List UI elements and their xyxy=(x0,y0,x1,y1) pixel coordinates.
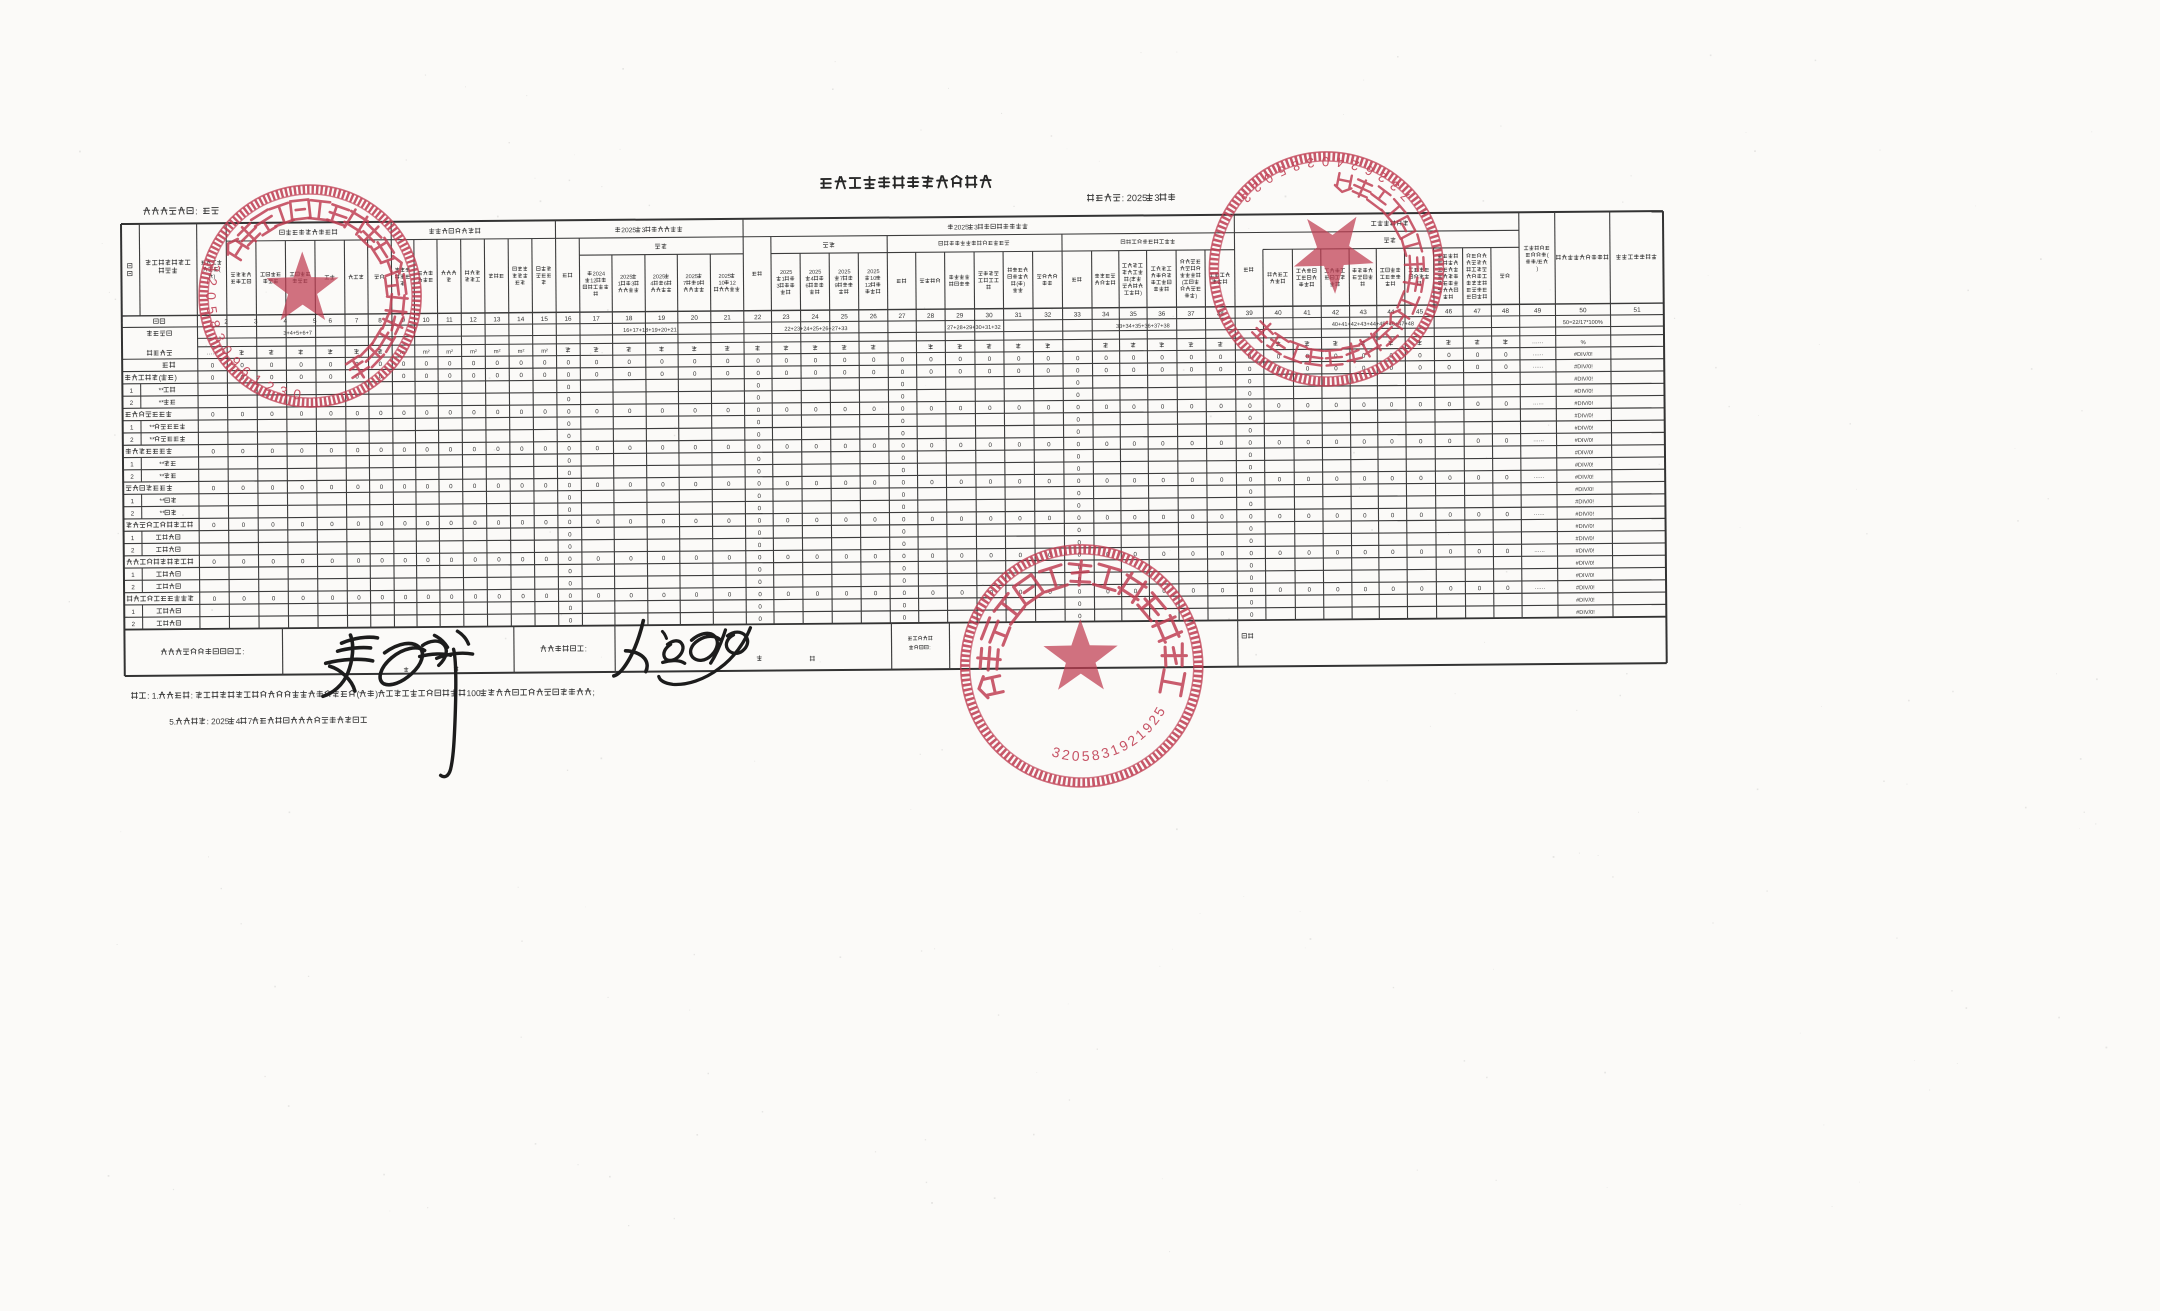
svg-text:0: 0 xyxy=(814,357,818,364)
svg-text:2025: 2025 xyxy=(838,269,851,275)
svg-text:40: 40 xyxy=(1275,310,1283,317)
svg-text:0: 0 xyxy=(521,520,525,527)
svg-text:0: 0 xyxy=(1018,515,1022,522)
svg-text:0: 0 xyxy=(242,596,246,603)
svg-text:0: 0 xyxy=(242,522,246,529)
svg-text:m²: m² xyxy=(423,350,430,356)
svg-text:0: 0 xyxy=(1418,352,1422,359)
svg-text:0: 0 xyxy=(1278,550,1282,557)
svg-text:0: 0 xyxy=(758,579,762,586)
svg-text:0: 0 xyxy=(902,492,906,499)
svg-text:0: 0 xyxy=(241,448,245,455)
svg-text:0: 0 xyxy=(728,555,732,562)
svg-text:0: 0 xyxy=(1279,587,1283,594)
svg-text:**: ** xyxy=(159,461,165,468)
svg-text:0: 0 xyxy=(693,358,697,365)
svg-text:0: 0 xyxy=(1335,402,1339,409)
svg-text:0: 0 xyxy=(270,411,274,418)
svg-text:0: 0 xyxy=(1133,477,1137,484)
svg-text:0: 0 xyxy=(568,495,572,502)
svg-text:0: 0 xyxy=(901,455,905,462)
svg-text:10: 10 xyxy=(870,276,876,282)
svg-text:0: 0 xyxy=(628,359,632,366)
svg-text:2024: 2024 xyxy=(593,271,606,277)
svg-text:0: 0 xyxy=(1322,154,1330,169)
svg-text:0: 0 xyxy=(757,395,761,402)
svg-text:0: 0 xyxy=(959,368,963,375)
svg-text:2025: 2025 xyxy=(780,270,793,276)
svg-text:0: 0 xyxy=(496,372,500,379)
svg-text:0: 0 xyxy=(301,521,305,528)
svg-text:34: 34 xyxy=(1102,311,1110,318)
svg-text:0: 0 xyxy=(203,292,219,300)
svg-text:2: 2 xyxy=(132,621,136,628)
svg-text:0: 0 xyxy=(1306,439,1310,446)
svg-text:4: 4 xyxy=(650,281,653,287)
svg-text:0: 0 xyxy=(568,470,572,477)
svg-text:0: 0 xyxy=(1133,514,1137,521)
svg-text:0: 0 xyxy=(568,507,572,514)
svg-text:0: 0 xyxy=(629,482,633,489)
svg-text:0: 0 xyxy=(1132,404,1136,411)
svg-text:0: 0 xyxy=(330,558,334,565)
svg-text:0: 0 xyxy=(1220,477,1224,484)
svg-text:0: 0 xyxy=(1448,401,1452,408)
svg-text:0: 0 xyxy=(844,480,848,487)
svg-text:16: 16 xyxy=(564,316,572,323)
svg-text:······: ······ xyxy=(1534,586,1545,592)
svg-text:0: 0 xyxy=(1506,548,1510,555)
svg-text:m²: m² xyxy=(518,349,525,355)
svg-text:7: 7 xyxy=(840,276,843,282)
svg-text:0: 0 xyxy=(1250,563,1254,570)
svg-text:0: 0 xyxy=(1249,477,1253,484)
svg-text:0: 0 xyxy=(1191,477,1195,484)
svg-text:0: 0 xyxy=(1504,364,1508,371)
svg-text:0: 0 xyxy=(241,411,245,418)
svg-text:12: 12 xyxy=(865,283,871,289)
svg-text:33+34+35+36+37+38: 33+34+35+36+37+38 xyxy=(1116,323,1170,329)
svg-text:0: 0 xyxy=(1390,439,1394,446)
svg-text:0: 0 xyxy=(543,409,547,416)
svg-text:5: 5 xyxy=(1081,748,1090,764)
svg-text:0: 0 xyxy=(1336,586,1340,593)
svg-text:0: 0 xyxy=(545,556,549,563)
svg-text:0: 0 xyxy=(356,410,360,417)
svg-text:0: 0 xyxy=(901,369,905,376)
svg-text:2: 2 xyxy=(131,510,135,517)
svg-text:0: 0 xyxy=(300,484,304,491)
svg-text:0: 0 xyxy=(1249,550,1253,557)
svg-text:0: 0 xyxy=(496,446,500,453)
svg-text:0: 0 xyxy=(901,418,905,425)
svg-text:0: 0 xyxy=(1161,367,1165,374)
svg-text:0: 0 xyxy=(1362,402,1366,409)
svg-text:0: 0 xyxy=(597,593,601,600)
svg-text:3: 3 xyxy=(631,281,634,287)
svg-text:0: 0 xyxy=(329,374,333,381)
svg-text:0: 0 xyxy=(872,406,876,413)
svg-text:0: 0 xyxy=(1221,550,1225,557)
svg-text:0: 0 xyxy=(1104,355,1108,362)
svg-text:0: 0 xyxy=(1047,478,1051,485)
svg-text:0: 0 xyxy=(1391,475,1395,482)
svg-text:0: 0 xyxy=(1391,549,1395,556)
svg-text:0: 0 xyxy=(330,484,334,491)
svg-text:0: 0 xyxy=(521,593,525,600)
svg-text:0: 0 xyxy=(1219,366,1223,373)
svg-text:51: 51 xyxy=(1633,307,1641,314)
svg-text:0: 0 xyxy=(1477,475,1481,482)
svg-text:0: 0 xyxy=(757,407,761,414)
svg-text:0: 0 xyxy=(959,442,963,449)
svg-text:#DIV/0!: #DIV/0! xyxy=(1575,512,1594,518)
svg-text:0: 0 xyxy=(1477,438,1481,445)
svg-text:0: 0 xyxy=(1046,355,1050,362)
svg-text:0: 0 xyxy=(758,567,762,574)
svg-text:0: 0 xyxy=(628,408,632,415)
svg-text:#DIV/0!: #DIV/0! xyxy=(1576,536,1595,542)
svg-text:0: 0 xyxy=(212,522,216,529)
svg-text:#DIV/0!: #DIV/0! xyxy=(1576,610,1595,616)
svg-text:0: 0 xyxy=(1478,585,1482,592)
svg-text:0: 0 xyxy=(1077,478,1081,485)
svg-text:0: 0 xyxy=(1306,402,1310,409)
svg-text:0: 0 xyxy=(873,517,877,524)
svg-text:0: 0 xyxy=(1448,438,1452,445)
svg-text:0: 0 xyxy=(1250,587,1254,594)
svg-text:**: ** xyxy=(159,387,165,394)
svg-text:0: 0 xyxy=(472,409,476,416)
svg-text:0: 0 xyxy=(271,522,275,529)
svg-text:5: 5 xyxy=(313,318,317,325)
svg-text:0: 0 xyxy=(331,595,335,602)
svg-text:(: ( xyxy=(1547,253,1549,259)
svg-text:0: 0 xyxy=(403,557,407,564)
svg-text:0: 0 xyxy=(1307,550,1311,557)
svg-text:0: 0 xyxy=(1277,403,1281,410)
svg-text:0: 0 xyxy=(544,446,548,453)
svg-text:6: 6 xyxy=(328,318,332,325)
svg-text:0: 0 xyxy=(1249,489,1253,496)
svg-text:: 2025: : 2025 xyxy=(207,717,230,726)
svg-text:m²: m² xyxy=(470,349,477,355)
svg-text:17: 17 xyxy=(593,315,601,322)
svg-text:0: 0 xyxy=(1363,439,1367,446)
svg-text:0: 0 xyxy=(902,516,906,523)
svg-text:0: 0 xyxy=(212,559,216,566)
svg-text:0: 0 xyxy=(1076,380,1080,387)
svg-text:0: 0 xyxy=(1419,401,1423,408)
svg-text:47: 47 xyxy=(1474,308,1482,315)
svg-text::: : xyxy=(242,647,244,656)
svg-text:0: 0 xyxy=(727,518,731,525)
svg-text:0: 0 xyxy=(758,518,762,525)
svg-text:0: 0 xyxy=(568,556,572,563)
svg-text:······: ······ xyxy=(1532,340,1544,346)
svg-text:0: 0 xyxy=(567,409,571,416)
svg-text:0: 0 xyxy=(960,590,964,597)
svg-text:3: 3 xyxy=(974,224,978,231)
svg-text:0: 0 xyxy=(758,604,762,611)
svg-text:12: 12 xyxy=(590,278,596,284)
svg-text:**: ** xyxy=(149,424,155,431)
svg-text:0: 0 xyxy=(1220,440,1224,447)
svg-text:0: 0 xyxy=(520,483,524,490)
svg-text:0: 0 xyxy=(902,553,906,560)
svg-text:20: 20 xyxy=(691,315,699,322)
svg-text:(: ( xyxy=(1182,280,1184,286)
svg-text:11: 11 xyxy=(446,317,453,324)
svg-text:0: 0 xyxy=(301,558,305,565)
svg-text:0: 0 xyxy=(1017,368,1021,375)
svg-text:0: 0 xyxy=(520,409,524,416)
svg-text:#DIV/0!: #DIV/0! xyxy=(1576,548,1595,554)
svg-text:0: 0 xyxy=(357,558,361,565)
svg-text:10: 10 xyxy=(718,281,724,287)
svg-text:0: 0 xyxy=(758,530,762,537)
svg-text:0: 0 xyxy=(544,482,548,489)
svg-text:0: 0 xyxy=(448,373,452,380)
svg-text:0: 0 xyxy=(402,361,406,368)
svg-text:0: 0 xyxy=(568,519,572,526)
svg-text:0: 0 xyxy=(403,521,407,528)
svg-text:0: 0 xyxy=(272,595,276,602)
svg-text:0: 0 xyxy=(301,595,305,602)
svg-text:0: 0 xyxy=(901,443,905,450)
svg-text:0: 0 xyxy=(727,444,731,451)
svg-text:0: 0 xyxy=(1190,403,1194,410)
svg-text:0: 0 xyxy=(1449,549,1453,556)
svg-text:0: 0 xyxy=(758,554,762,561)
svg-text:0: 0 xyxy=(1017,356,1021,363)
svg-text:0: 0 xyxy=(785,407,789,414)
svg-text:1: 1 xyxy=(130,461,134,468)
svg-text:0: 0 xyxy=(213,596,217,603)
svg-text:0: 0 xyxy=(1420,549,1424,556)
svg-text:0: 0 xyxy=(449,446,453,453)
svg-text:0: 0 xyxy=(1249,526,1253,533)
svg-text:**: ** xyxy=(159,400,165,407)
svg-text:3+4+5+6+7: 3+4+5+6+7 xyxy=(283,331,312,337)
svg-text:0: 0 xyxy=(814,370,818,377)
svg-text:10: 10 xyxy=(422,317,430,324)
svg-text:0: 0 xyxy=(662,518,666,525)
svg-text:30: 30 xyxy=(986,312,994,319)
svg-text:5.: 5. xyxy=(169,718,176,727)
svg-text:0: 0 xyxy=(1018,478,1022,485)
svg-text:0: 0 xyxy=(1104,367,1108,374)
svg-text:0: 0 xyxy=(1047,368,1051,375)
svg-text:6: 6 xyxy=(805,283,808,289)
svg-text:22: 22 xyxy=(754,314,762,321)
svg-text:0: 0 xyxy=(1420,512,1424,519)
svg-text:0: 0 xyxy=(903,590,907,597)
svg-text::: : xyxy=(929,645,931,651)
svg-text:0: 0 xyxy=(404,594,408,601)
svg-text:0: 0 xyxy=(569,605,573,612)
svg-text:0: 0 xyxy=(1132,355,1136,362)
svg-text:7: 7 xyxy=(355,318,359,325)
svg-text:0: 0 xyxy=(567,372,571,379)
svg-text:0: 0 xyxy=(497,483,501,490)
svg-text:#DIV/0!: #DIV/0! xyxy=(1575,462,1594,468)
svg-text:0: 0 xyxy=(1191,551,1195,558)
svg-text:0: 0 xyxy=(300,448,304,455)
svg-text:9: 9 xyxy=(835,283,838,289)
svg-text:0: 0 xyxy=(426,483,430,490)
svg-text:2: 2 xyxy=(130,437,134,444)
svg-text:0: 0 xyxy=(815,517,819,524)
svg-text:0: 0 xyxy=(1076,355,1080,362)
svg-text:0: 0 xyxy=(901,381,905,388)
svg-text:0: 0 xyxy=(300,411,304,418)
svg-text:0: 0 xyxy=(1391,586,1395,593)
svg-text:0: 0 xyxy=(380,558,384,565)
svg-text:0: 0 xyxy=(757,481,761,488)
svg-text:0: 0 xyxy=(930,442,934,449)
svg-text:7: 7 xyxy=(248,717,253,726)
svg-text:0: 0 xyxy=(596,482,600,489)
svg-text:0: 0 xyxy=(496,360,500,367)
svg-text:0: 0 xyxy=(1334,365,1338,372)
svg-text:0: 0 xyxy=(988,442,992,449)
svg-text:0: 0 xyxy=(1505,511,1509,518)
svg-text:0: 0 xyxy=(1447,352,1451,359)
svg-text:0: 0 xyxy=(472,373,476,380)
svg-text:0: 0 xyxy=(960,516,964,523)
svg-text:0: 0 xyxy=(569,617,573,624)
svg-text:0: 0 xyxy=(662,555,666,562)
svg-text:0: 0 xyxy=(425,373,429,380)
svg-text:0: 0 xyxy=(757,468,761,475)
svg-text:0: 0 xyxy=(1420,586,1424,593)
svg-text:0: 0 xyxy=(1277,439,1281,446)
svg-text:(: ( xyxy=(1016,282,1018,288)
svg-text:0: 0 xyxy=(1249,452,1253,459)
svg-text:0: 0 xyxy=(497,520,501,527)
svg-text:0: 0 xyxy=(299,374,303,381)
svg-text:0: 0 xyxy=(1018,442,1022,449)
svg-text:2025: 2025 xyxy=(718,274,731,280)
svg-text:1: 1 xyxy=(131,609,135,616)
svg-text:······: ······ xyxy=(1533,401,1544,407)
svg-text:0: 0 xyxy=(427,594,431,601)
svg-text:0: 0 xyxy=(1160,354,1164,361)
svg-text:0: 0 xyxy=(380,521,384,528)
svg-text:0: 0 xyxy=(1105,478,1109,485)
svg-text:0: 0 xyxy=(1076,417,1080,424)
svg-text:43: 43 xyxy=(1360,309,1368,316)
svg-text:0: 0 xyxy=(543,372,547,379)
svg-text:0: 0 xyxy=(567,433,571,440)
svg-text:0: 0 xyxy=(960,553,964,560)
svg-text:0: 0 xyxy=(1248,391,1252,398)
svg-text:0: 0 xyxy=(695,592,699,599)
svg-text:0: 0 xyxy=(1249,440,1253,447)
svg-text:0: 0 xyxy=(695,555,699,562)
svg-text:0: 0 xyxy=(567,458,571,465)
svg-text:37: 37 xyxy=(1187,311,1195,318)
svg-text:0: 0 xyxy=(1077,515,1081,522)
svg-text:······: ······ xyxy=(1533,438,1544,444)
svg-text:0: 0 xyxy=(903,602,907,609)
svg-text:0: 0 xyxy=(402,373,406,380)
svg-text:48: 48 xyxy=(1502,308,1510,315)
svg-text:#DIV/0!: #DIV/0! xyxy=(1575,487,1594,493)
svg-text:0: 0 xyxy=(694,444,698,451)
svg-text:0: 0 xyxy=(1250,599,1254,606)
svg-text:0: 0 xyxy=(629,592,633,599)
svg-text:13: 13 xyxy=(493,316,501,323)
svg-text:0: 0 xyxy=(757,444,761,451)
svg-text:0: 0 xyxy=(1307,476,1311,483)
svg-text:8: 8 xyxy=(378,317,382,324)
svg-text:0: 0 xyxy=(1418,365,1422,372)
svg-text:0: 0 xyxy=(873,480,877,487)
svg-text:0: 0 xyxy=(758,542,762,549)
svg-text:1: 1 xyxy=(130,424,134,431)
svg-text:0: 0 xyxy=(271,485,275,492)
svg-text:0: 0 xyxy=(1105,441,1109,448)
svg-text:0: 0 xyxy=(380,484,384,491)
svg-text:······: ······ xyxy=(1533,352,1544,358)
svg-text:1: 1 xyxy=(782,277,785,283)
svg-text:0: 0 xyxy=(330,447,334,454)
svg-text:1: 1 xyxy=(618,282,621,288)
svg-text:0: 0 xyxy=(628,445,632,452)
svg-text:0: 0 xyxy=(845,591,849,598)
svg-text:0: 0 xyxy=(271,558,275,565)
svg-text:0: 0 xyxy=(757,456,761,463)
svg-text:0: 0 xyxy=(628,371,632,378)
svg-text:25: 25 xyxy=(841,313,849,320)
svg-text:0: 0 xyxy=(381,594,385,601)
svg-text:0: 0 xyxy=(1449,512,1453,519)
svg-text:0: 0 xyxy=(568,568,572,575)
svg-text:0: 0 xyxy=(1078,601,1082,608)
svg-text:0: 0 xyxy=(1190,367,1194,374)
svg-text:0: 0 xyxy=(1363,476,1367,483)
svg-text:0: 0 xyxy=(1219,403,1223,410)
svg-text:0: 0 xyxy=(902,541,906,548)
svg-text:0: 0 xyxy=(930,405,934,412)
svg-text:2025: 2025 xyxy=(954,224,969,231)
svg-text:0: 0 xyxy=(726,358,730,365)
svg-text:32: 32 xyxy=(1044,312,1052,319)
svg-text:0: 0 xyxy=(726,407,730,414)
svg-text:0: 0 xyxy=(473,483,477,490)
svg-text:0: 0 xyxy=(661,445,665,452)
svg-text:0: 0 xyxy=(1449,585,1453,592)
svg-text:0: 0 xyxy=(1248,427,1252,434)
svg-text:21: 21 xyxy=(724,314,732,321)
svg-text:): ) xyxy=(375,689,378,699)
svg-text:0: 0 xyxy=(569,593,573,600)
svg-text:0: 0 xyxy=(728,591,732,598)
svg-text:: 2025: : 2025 xyxy=(1122,193,1148,203)
svg-text:0: 0 xyxy=(379,361,383,368)
svg-text:31: 31 xyxy=(1015,312,1023,319)
svg-text:0: 0 xyxy=(450,594,454,601)
svg-text:0: 0 xyxy=(816,591,820,598)
svg-text:m²: m² xyxy=(494,349,501,355)
svg-text:0: 0 xyxy=(959,405,963,412)
svg-text:0: 0 xyxy=(379,447,383,454)
svg-text:0: 0 xyxy=(902,504,906,511)
svg-text:0: 0 xyxy=(520,446,524,453)
svg-text:0: 0 xyxy=(426,520,430,527)
